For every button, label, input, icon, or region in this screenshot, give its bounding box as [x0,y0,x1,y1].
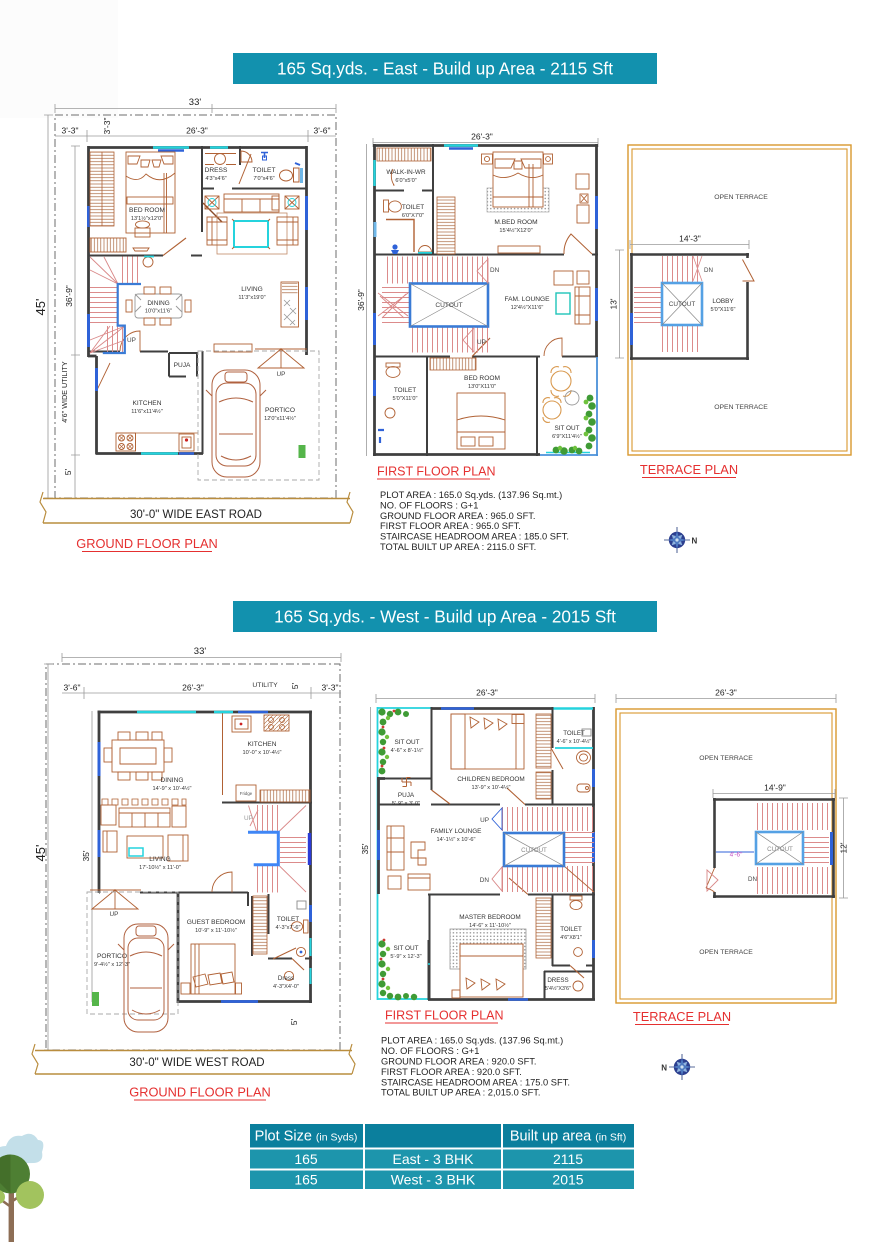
svg-text:PORTICO: PORTICO [265,407,295,414]
svg-text:West - 3 BHK: West - 3 BHK [391,1172,476,1188]
svg-text:5'-9" x 12'-3": 5'-9" x 12'-3" [390,954,421,960]
svg-text:5': 5' [289,1018,299,1025]
svg-text:MASTER BEDROOM: MASTER BEDROOM [459,914,520,921]
svg-text:CUTOUT: CUTOUT [669,301,696,308]
svg-text:13'1½"x12'0": 13'1½"x12'0" [131,215,163,222]
svg-text:10'0"x11'6": 10'0"x11'6" [145,309,172,315]
svg-text:UP: UP [480,817,489,824]
svg-text:10'-0" x 10'-4½": 10'-0" x 10'-4½" [242,749,281,756]
svg-text:CHILDREN BEDROOM: CHILDREN BEDROOM [457,776,524,783]
svg-text:UTILITY: UTILITY [252,682,278,689]
svg-text:DINING: DINING [147,300,169,307]
svg-text:4'-3"x7'-6": 4'-3"x7'-6" [275,925,300,931]
svg-text:TOTAL BUILT UP AREA : 2115.0 S: TOTAL BUILT UP AREA : 2115.0 SFT. [380,542,536,552]
svg-text:TOILET: TOILET [253,167,276,174]
svg-text:13'-9" x 10'-4½": 13'-9" x 10'-4½" [471,784,510,791]
svg-text:35': 35' [81,850,91,861]
svg-text:12'0"x11'4½": 12'0"x11'4½" [264,415,296,422]
svg-text:Fridge: Fridge [240,791,253,796]
svg-text:BED ROOM: BED ROOM [129,207,165,214]
svg-text:GROUND FLOOR PLAN: GROUND FLOOR PLAN [129,1085,271,1100]
svg-text:165: 165 [294,1151,318,1167]
svg-text:FIRST FLOOR AREA : 965.0 SFT.: FIRST FLOOR AREA : 965.0 SFT. [380,521,521,531]
svg-text:CUTOUT: CUTOUT [435,302,462,309]
svg-text:UP: UP [477,339,486,346]
svg-text:14'-6" x 11'-10½": 14'-6" x 11'-10½" [469,922,511,929]
svg-text:DN: DN [748,876,757,883]
svg-text:OPEN TERRACE: OPEN TERRACE [714,194,768,201]
svg-text:30'-0" WIDE EAST ROAD: 30'-0" WIDE EAST ROAD [130,509,262,521]
svg-text:12': 12' [839,842,849,853]
svg-text:Dress: Dress [278,975,294,982]
svg-text:3'-3": 3'-3" [322,683,339,693]
svg-text:45': 45' [33,845,48,862]
svg-text:33': 33' [189,97,202,108]
svg-text:SIT OUT: SIT OUT [554,425,579,432]
svg-text:UP: UP [110,911,119,918]
svg-text:26'-3": 26'-3" [471,132,493,142]
svg-text:5'0"X11'6": 5'0"X11'6" [711,307,736,313]
svg-text:30'-0" WIDE WEST ROAD: 30'-0" WIDE WEST ROAD [129,1057,264,1069]
svg-text:26'-3": 26'-3" [715,688,737,698]
svg-text:SIT OUT: SIT OUT [394,739,419,746]
svg-text:11'6"x11'4½": 11'6"x11'4½" [131,408,162,415]
svg-text:N: N [661,1064,667,1073]
svg-text:GUEST BEDROOM: GUEST BEDROOM [187,919,246,926]
svg-text:LOBBY: LOBBY [712,298,734,305]
svg-text:9'-4½" x 12'-3": 9'-4½" x 12'-3" [94,961,130,968]
svg-text:DRESS: DRESS [547,977,568,984]
svg-text:BED ROOM: BED ROOM [464,375,500,382]
svg-text:DN: DN [480,877,490,884]
svg-text:East - 3 BHK: East - 3 BHK [393,1151,475,1167]
svg-text:UP: UP [244,815,253,822]
svg-text:165 Sq.yds. - East - Build up: 165 Sq.yds. - East - Build up Area - 211… [277,59,613,79]
svg-text:CUTOUT: CUTOUT [521,847,547,854]
svg-text:TOILET: TOILET [394,387,416,394]
svg-text:PLOT AREA : 165.0 Sq.yds. (137: PLOT AREA : 165.0 Sq.yds. (137.96 Sq.mt.… [380,490,562,500]
svg-text:5': 5' [290,682,300,689]
svg-text:Plot Size (in Syds): Plot Size (in Syds) [255,1129,358,1145]
svg-text:STAIRCASE HEADROOM AREA : 185.: STAIRCASE HEADROOM AREA : 185.0 SFT. [380,532,569,542]
svg-text:2115: 2115 [553,1151,583,1167]
svg-text:NO. OF FLOORS : G+1: NO. OF FLOORS : G+1 [381,1046,479,1056]
svg-text:5'4½"X3'6": 5'4½"X3'6" [545,985,571,992]
svg-text:6'0"X7'0": 6'0"X7'0" [402,213,424,219]
svg-text:PUJA: PUJA [174,362,191,369]
svg-text:GROUND FLOOR AREA : 920.0 SFT.: GROUND FLOOR AREA : 920.0 SFT. [381,1057,537,1067]
svg-text:14'-3": 14'-3" [679,234,701,244]
svg-text:WALK-IN-WR: WALK-IN-WR [386,169,426,176]
svg-text:2015: 2015 [552,1172,583,1188]
svg-text:DN: DN [704,267,713,274]
svg-text:GROUND FLOOR AREA : 965.0 SFT.: GROUND FLOOR AREA : 965.0 SFT. [380,511,536,521]
svg-text:6'9"X11'4½": 6'9"X11'4½" [552,433,582,440]
svg-text:OPEN TERRACE: OPEN TERRACE [699,755,753,762]
svg-text:4'-6" x 8'-1½": 4'-6" x 8'-1½" [391,747,424,754]
svg-text:5'0"X11'0": 5'0"X11'0" [393,396,418,402]
svg-text:165 Sq.yds. - West - Build up: 165 Sq.yds. - West - Build up Area - 201… [274,607,616,627]
svg-text:35': 35' [360,843,370,854]
svg-text:6'0"x5'0": 6'0"x5'0" [395,178,416,184]
svg-text:FIRST FLOOR PLAN: FIRST FLOOR PLAN [385,1009,504,1023]
svg-text:GROUND FLOOR PLAN: GROUND FLOOR PLAN [76,536,218,551]
svg-text:3'-6": 3'-6" [314,126,331,136]
svg-text:KITCHEN: KITCHEN [133,400,162,407]
svg-text:17'-10½" x 11'-0": 17'-10½" x 11'-0" [139,864,181,871]
svg-text:14'-9" x 10'-4½": 14'-9" x 10'-4½" [152,785,191,792]
svg-text:DINING: DINING [160,777,183,784]
svg-text:TERRACE PLAN: TERRACE PLAN [633,1009,731,1024]
svg-text:11'3"x19'0": 11'3"x19'0" [238,295,265,301]
svg-text:5'-9" x 3'-0": 5'-9" x 3'-0" [392,801,420,807]
svg-text:M.BED ROOM: M.BED ROOM [494,219,537,226]
svg-text:KITCHEN: KITCHEN [248,741,277,748]
svg-text:4'6"X8'1": 4'6"X8'1" [560,935,582,941]
svg-text:7'0"x4'6": 7'0"x4'6" [253,176,274,182]
svg-text:4'-6" x 10'-4½": 4'-6" x 10'-4½" [557,738,592,745]
svg-text:NO. OF FLOORS : G+1: NO. OF FLOORS : G+1 [380,500,478,510]
svg-text:45': 45' [33,299,48,316]
svg-text:OPEN TERRACE: OPEN TERRACE [699,949,753,956]
svg-text:3'-6": 3'-6" [64,683,81,693]
svg-text:13': 13' [609,298,619,309]
svg-text:5': 5' [63,468,73,475]
svg-text:TOILET: TOILET [277,916,299,923]
svg-text:TERRACE PLAN: TERRACE PLAN [640,462,738,477]
svg-text:26'-3": 26'-3" [186,126,208,136]
svg-text:165: 165 [294,1172,318,1188]
svg-text:14'-1½" x 10'-6": 14'-1½" x 10'-6" [436,836,475,843]
svg-text:FIRST FLOOR AREA : 920.0 SFT.: FIRST FLOOR AREA : 920.0 SFT. [381,1067,522,1077]
svg-text:SIT OUT: SIT OUT [393,945,418,952]
svg-text:4'-3"X4'-0": 4'-3"X4'-0" [273,984,299,990]
svg-text:Built up area (in Sft): Built up area (in Sft) [510,1129,626,1145]
svg-text:LIVING: LIVING [149,856,171,863]
svg-text:FAMILY LOUNGE: FAMILY LOUNGE [431,828,482,835]
svg-text:13'0"X11'0": 13'0"X11'0" [468,384,496,390]
svg-text:26'-3": 26'-3" [476,688,498,698]
svg-text:DN: DN [490,267,500,274]
svg-text:UP: UP [277,371,286,378]
svg-text:DRESS: DRESS [205,167,228,174]
svg-text:33': 33' [194,646,207,657]
svg-text:15'4½"X12'0": 15'4½"X12'0" [499,227,532,234]
svg-text:3'-3": 3'-3" [62,126,79,136]
svg-text:FAM. LOUNGE: FAM. LOUNGE [504,296,550,303]
svg-text:TOILET: TOILET [563,730,585,737]
svg-text:4'3"x4'6": 4'3"x4'6" [205,176,226,182]
svg-text:OPEN TERRACE: OPEN TERRACE [714,404,768,411]
svg-text:PLOT AREA : 165.0 Sq.yds. (137: PLOT AREA : 165.0 Sq.yds. (137.96 Sq.mt.… [381,1036,563,1046]
svg-text:PUJA: PUJA [398,792,415,799]
svg-text:STAIRCASE HEADROOM AREA : 175.: STAIRCASE HEADROOM AREA : 175.0 SFT. [381,1077,570,1087]
svg-text:PORTICO: PORTICO [97,953,127,960]
svg-text:36'-9": 36'-9" [356,289,366,311]
svg-text:FIRST FLOOR PLAN: FIRST FLOOR PLAN [377,465,496,479]
svg-text:4'-6": 4'-6" [730,852,743,859]
svg-text:3'-3": 3'-3" [102,118,112,135]
svg-text:LIVING: LIVING [241,286,263,293]
svg-text:12'4½"X11'6": 12'4½"X11'6" [511,304,544,311]
svg-text:14'-9": 14'-9" [764,783,786,793]
svg-text:36'-9": 36'-9" [64,285,74,307]
svg-text:N: N [692,537,698,546]
svg-text:10'-9" x 11'-10½": 10'-9" x 11'-10½" [195,927,237,934]
svg-text:TOILET: TOILET [402,204,424,211]
svg-text:26'-3": 26'-3" [182,683,204,693]
svg-text:TOILET: TOILET [560,926,582,933]
svg-text:CUTOUT: CUTOUT [767,846,793,853]
svg-text:TOTAL BUILT UP AREA : 2,015.0: TOTAL BUILT UP AREA : 2,015.0 SFT. [381,1088,541,1098]
svg-text:4'6" WIDE UTILITY: 4'6" WIDE UTILITY [60,361,69,423]
svg-text:UP: UP [127,337,136,344]
